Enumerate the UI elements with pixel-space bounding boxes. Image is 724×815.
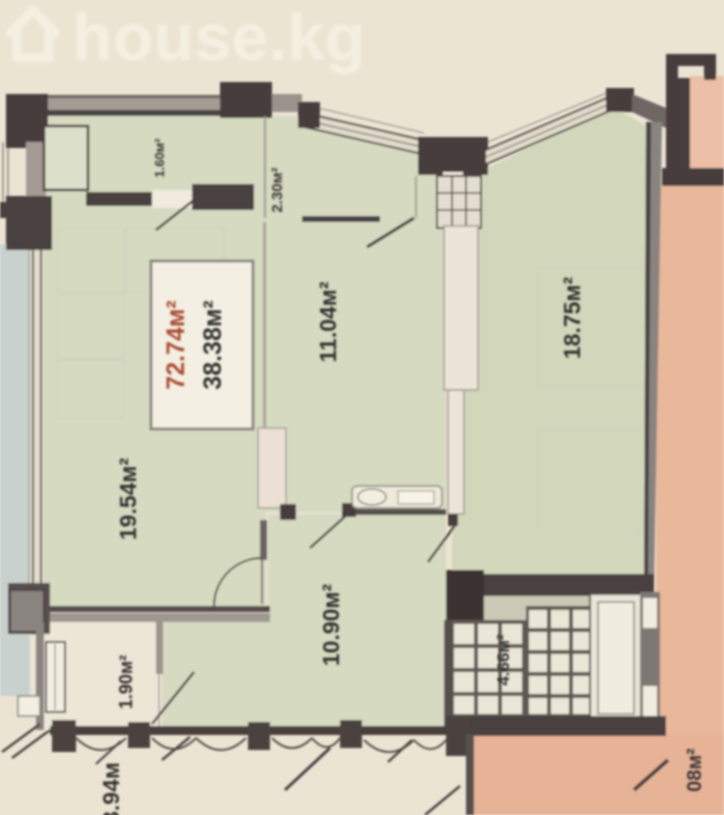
svg-text:2.30м²: 2.30м² (269, 167, 286, 212)
svg-text:4.66м²: 4.66м² (494, 634, 513, 686)
svg-text:11.04м²: 11.04м² (315, 281, 341, 362)
svg-text:08м²: 08м² (684, 748, 706, 792)
svg-text:3.94м: 3.94м (98, 762, 124, 815)
svg-text:10.90м²: 10.90м² (318, 584, 344, 667)
svg-text:1.60м²: 1.60м² (152, 138, 167, 178)
svg-text:house.kg: house.kg (72, 0, 366, 74)
svg-text:18.75м²: 18.75м² (559, 277, 585, 360)
svg-text:1.90м²: 1.90м² (116, 655, 136, 709)
svg-text:38.38м²: 38.38м² (199, 300, 227, 389)
svg-text:72.74м²: 72.74м² (162, 300, 190, 389)
svg-text:19.54м²: 19.54м² (115, 458, 141, 541)
